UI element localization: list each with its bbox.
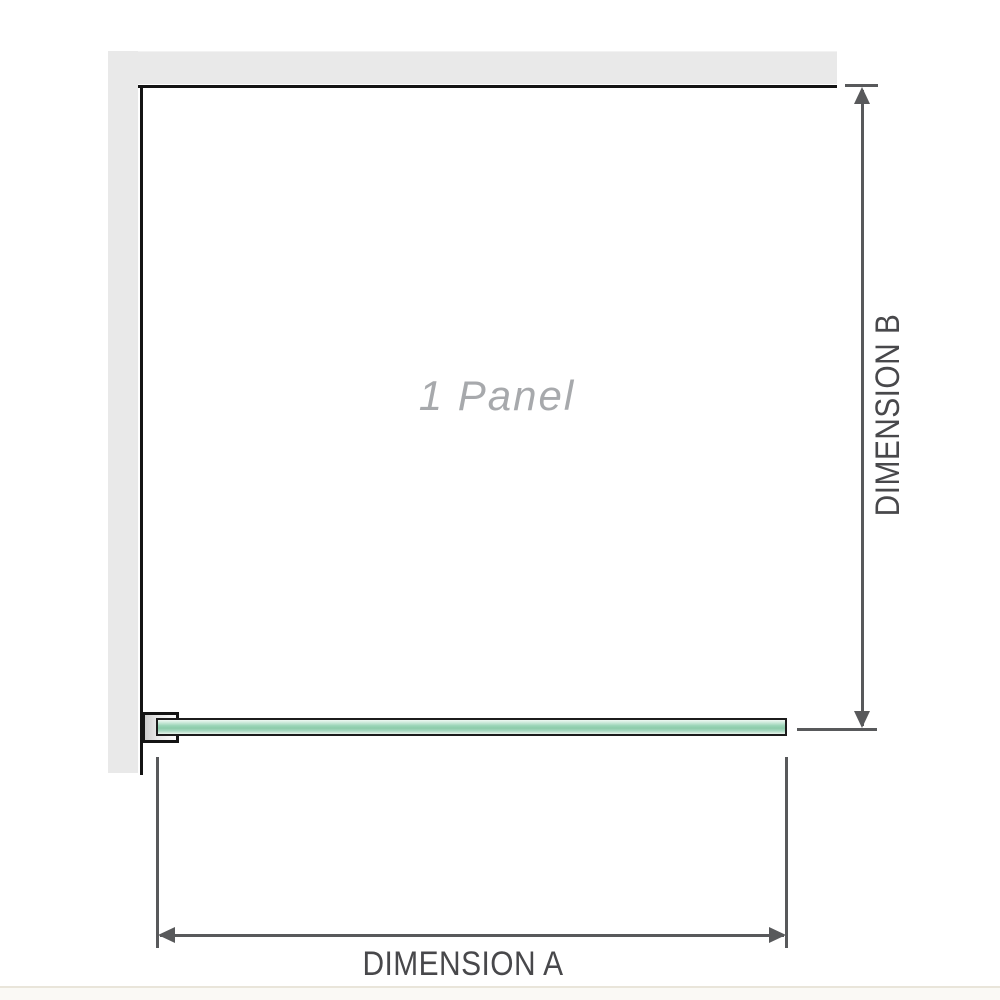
image-bottom-edge — [0, 986, 1000, 1000]
dimension-a-extension-left — [156, 757, 159, 948]
dimension-a-line — [160, 934, 784, 937]
glass-panel-bar — [156, 718, 787, 736]
dimension-a-label: DIMENSION A — [287, 944, 639, 984]
diagram-canvas: 1 Panel DIMENSION B DIMENSION A — [0, 0, 1000, 1000]
dimension-b-arrow-up-icon — [854, 87, 870, 104]
left-wall — [108, 51, 138, 773]
wall-inner-edge-horizontal — [138, 85, 837, 88]
dimension-b-tick-bottom — [797, 728, 877, 731]
dimension-b-line — [861, 90, 864, 726]
dimension-b-arrow-down-icon — [854, 711, 870, 728]
panel-count-label: 1 Panel — [347, 371, 647, 421]
dimension-a-extension-right — [785, 757, 788, 948]
dimension-a-arrow-right-icon — [769, 927, 786, 943]
wall-inner-edge-vertical — [140, 85, 143, 775]
dimension-a-arrow-left-icon — [158, 927, 175, 943]
top-wall — [108, 51, 837, 84]
dimension-b-label: DIMENSION B — [868, 239, 908, 591]
